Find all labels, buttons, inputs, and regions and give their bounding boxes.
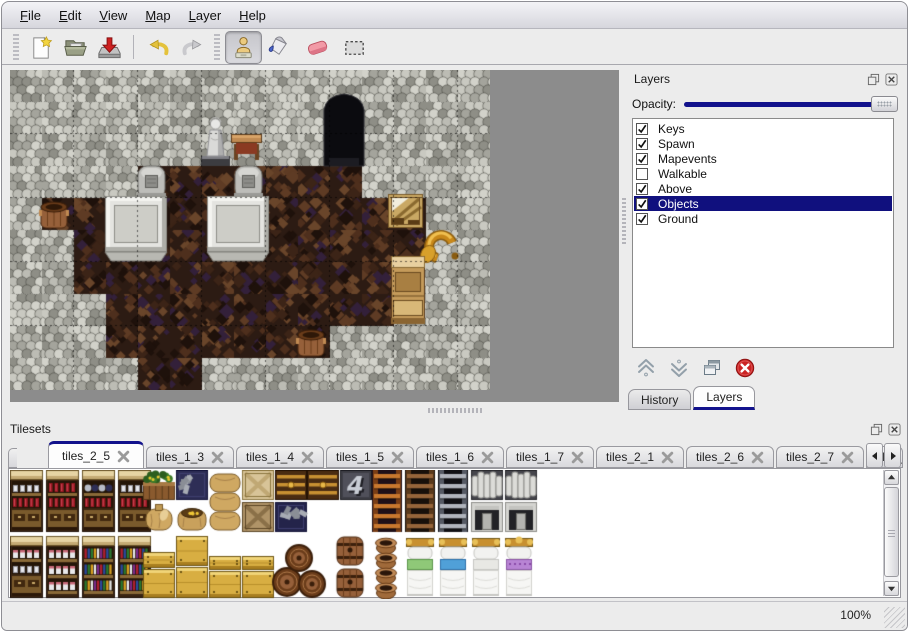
tileset-tab-tiles_2_7[interactable]: tiles_2_7: [776, 446, 864, 468]
layer-visibility-checkbox[interactable]: [636, 168, 648, 180]
tileset-canvas[interactable]: [10, 470, 544, 599]
tilesets-panel: Tilesets tiles_2_5tiles_1_3tiles_1_4tile…: [4, 418, 907, 600]
tileset-tab-tiles_1_7[interactable]: tiles_1_7: [506, 446, 594, 468]
arrow-up-icon: [635, 357, 657, 379]
tileset-tab-tiles_1_3[interactable]: tiles_1_3: [146, 446, 234, 468]
tileset-tab-tiles_2_5[interactable]: tiles_2_5: [48, 441, 144, 469]
tab-label: tiles_2_1: [606, 450, 654, 464]
fill-tool-button[interactable]: [262, 31, 299, 64]
layer-name: Walkable: [658, 167, 707, 181]
layer-visibility-checkbox[interactable]: [636, 213, 648, 225]
scrollbar-thumb[interactable]: [884, 487, 899, 577]
opacity-slider[interactable]: [684, 95, 898, 113]
vertical-splitter[interactable]: [619, 70, 628, 402]
select-icon: [341, 34, 368, 61]
handle-grip-dots: [877, 101, 892, 107]
new-file-icon: [28, 34, 55, 61]
close-panel-button[interactable]: [887, 422, 901, 436]
toolbar-grip[interactable]: [13, 34, 19, 60]
close-panel-button[interactable]: [884, 72, 898, 86]
layer-visibility-checkbox[interactable]: [636, 138, 648, 150]
layer-row-spawn[interactable]: Spawn: [634, 136, 892, 151]
menu-layer[interactable]: Layer: [181, 5, 230, 26]
stamp-tool-button[interactable]: [225, 31, 262, 64]
tileset-tab-tiles_2_6[interactable]: tiles_2_6: [686, 446, 774, 468]
layer-actions: [634, 354, 757, 382]
menu-help[interactable]: Help: [231, 5, 274, 26]
tileset-content[interactable]: [8, 468, 901, 598]
app-window: FileEditViewMapLayerHelp Layers Opacity:…: [1, 1, 908, 631]
scroll-down-button[interactable]: [884, 581, 899, 596]
new-button[interactable]: [24, 32, 58, 63]
layer-delete-button[interactable]: [733, 356, 757, 380]
layer-row-objects[interactable]: Objects: [634, 196, 892, 211]
tab-close-icon[interactable]: [117, 450, 130, 463]
redo-button[interactable]: [175, 32, 209, 63]
tab-close-icon[interactable]: [841, 451, 854, 464]
layer-row-ground[interactable]: Ground: [634, 211, 892, 226]
layer-name: Objects: [658, 197, 699, 211]
tileset-tab-tiles_2_1[interactable]: tiles_2_1: [596, 446, 684, 468]
bottom-panel-tabs: HistoryLayers: [628, 384, 757, 410]
layer-row-walkable[interactable]: Walkable: [634, 166, 892, 181]
tab-label: tiles_1_4: [246, 450, 294, 464]
tab-history[interactable]: History: [628, 389, 691, 410]
tab-close-icon[interactable]: [571, 451, 584, 464]
stamp-icon: [230, 34, 257, 61]
thumb-grip: [888, 530, 895, 537]
tileset-tabbar: tiles_2_5tiles_1_3tiles_1_4tiles_1_5tile…: [8, 440, 903, 468]
eraser-tool-button[interactable]: [299, 31, 336, 64]
tab-layers[interactable]: Layers: [693, 386, 755, 410]
layer-list[interactable]: KeysSpawnMapeventsWalkableAboveObjectsGr…: [632, 118, 894, 348]
toolbar-separator: [133, 35, 134, 59]
tab-label: tiles_2_7: [786, 450, 834, 464]
layer-visibility-checkbox[interactable]: [636, 123, 648, 135]
eraser-icon: [304, 34, 331, 61]
tab-label: tiles_1_6: [426, 450, 474, 464]
tileset-tab-tiles_1_4[interactable]: tiles_1_4: [236, 446, 324, 468]
opacity-row: Opacity:: [632, 92, 898, 116]
map-canvas[interactable]: [10, 70, 490, 390]
select-tool-button[interactable]: [336, 31, 373, 64]
fill-icon: [267, 34, 294, 61]
tab-close-icon[interactable]: [751, 451, 764, 464]
tab-label: tiles_1_3: [156, 450, 204, 464]
tab-close-icon[interactable]: [301, 451, 314, 464]
layer-up-button[interactable]: [634, 356, 658, 380]
menu-file[interactable]: File: [12, 5, 49, 26]
layer-row-above[interactable]: Above: [634, 181, 892, 196]
layers-panel: Layers Opacity: KeysSpawnMapeventsWalkab…: [628, 68, 904, 414]
menu-bar: FileEditViewMapLayerHelp: [2, 2, 907, 29]
opacity-label: Opacity:: [632, 97, 676, 111]
layers-panel-header: Layers: [628, 68, 904, 90]
layer-name: Ground: [658, 212, 698, 226]
zoom-level: 100%: [840, 608, 871, 622]
tileset-tab-tiles_1_5[interactable]: tiles_1_5: [326, 446, 414, 468]
resize-grip[interactable]: [884, 607, 905, 628]
layers-panel-title: Layers: [634, 72, 670, 86]
layer-name: Keys: [658, 122, 685, 136]
map-view[interactable]: [10, 70, 619, 402]
menu-edit[interactable]: Edit: [51, 5, 89, 26]
tileset-tab-tiles_1_6[interactable]: tiles_1_6: [416, 446, 504, 468]
layer-duplicate-button[interactable]: [700, 356, 724, 380]
layer-down-button[interactable]: [667, 356, 691, 380]
tab-label: tiles_1_7: [516, 450, 564, 464]
status-bar: 100%: [2, 601, 907, 630]
save-icon: [96, 34, 123, 61]
tab-label: tiles_1_5: [336, 450, 384, 464]
menu-map[interactable]: Map: [137, 5, 178, 26]
tab-partial[interactable]: [8, 448, 17, 468]
arrow-down-icon: [668, 357, 690, 379]
redo-icon: [179, 34, 206, 61]
tab-close-icon[interactable]: [391, 451, 404, 464]
menu-view[interactable]: View: [91, 5, 135, 26]
toolbar: [2, 30, 907, 65]
opacity-track[interactable]: [684, 102, 896, 107]
layer-visibility-checkbox[interactable]: [636, 198, 648, 210]
opacity-handle[interactable]: [871, 96, 898, 112]
open-icon: [62, 34, 89, 61]
float-panel-button[interactable]: [869, 422, 883, 436]
tab-label: tiles_2_5: [62, 449, 110, 463]
toolbar-grip[interactable]: [214, 34, 220, 60]
tab-close-icon[interactable]: [661, 451, 674, 464]
open-button[interactable]: [58, 32, 92, 63]
tabs-scroll-right-button[interactable]: [884, 443, 901, 468]
tabs-scroll-left-button[interactable]: [866, 443, 883, 468]
scroll-up-button[interactable]: [884, 470, 899, 485]
undo-button[interactable]: [141, 32, 175, 63]
undo-icon: [145, 34, 172, 61]
tileset-scrollbar[interactable]: [883, 470, 899, 596]
splitter-grip: [428, 408, 482, 413]
float-panel-button[interactable]: [866, 72, 880, 86]
tilesets-panel-header: Tilesets: [4, 418, 907, 440]
layer-visibility-checkbox[interactable]: [636, 183, 648, 195]
layer-visibility-checkbox[interactable]: [636, 153, 648, 165]
save-button[interactable]: [92, 32, 126, 63]
layer-row-mapevents[interactable]: Mapevents: [634, 151, 892, 166]
layer-row-keys[interactable]: Keys: [634, 121, 892, 136]
layer-name: Mapevents: [658, 152, 717, 166]
layer-name: Above: [658, 182, 692, 196]
tab-close-icon[interactable]: [481, 451, 494, 464]
tilesets-panel-title: Tilesets: [10, 422, 51, 436]
splitter-grip: [622, 198, 626, 244]
duplicate-icon: [701, 357, 723, 379]
tab-label: tiles_2_6: [696, 450, 744, 464]
delete-icon: [734, 357, 756, 379]
tab-close-icon[interactable]: [211, 451, 224, 464]
layer-name: Spawn: [658, 137, 695, 151]
